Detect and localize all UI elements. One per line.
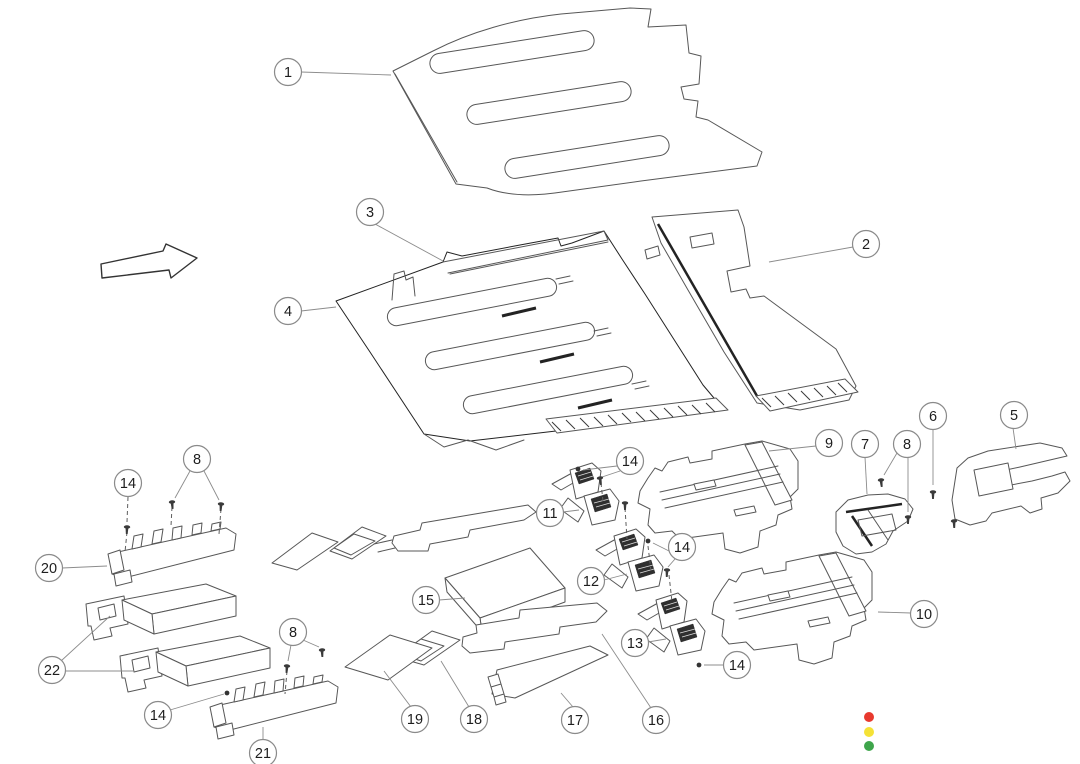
dashed-leader-line <box>171 507 172 526</box>
part-7-frame-bracket <box>836 494 913 554</box>
leader-line <box>62 566 107 568</box>
part-22-block-pads <box>86 584 270 692</box>
callout-3: 3 <box>357 199 384 226</box>
callout-14: 14 <box>669 534 696 561</box>
part-1-top-panel <box>393 8 762 195</box>
leader-line <box>175 471 190 498</box>
part-12-clip-bracket <box>596 529 663 591</box>
part-21-fin-rail <box>210 675 338 739</box>
leader-line <box>561 693 573 707</box>
callout-label: 18 <box>466 712 482 728</box>
screw-icon <box>622 501 628 510</box>
callout-10: 10 <box>911 601 938 628</box>
leader-line <box>1013 428 1016 449</box>
exploded-parts-figure: 1342569788141411142012151081314221419181… <box>0 0 1080 764</box>
callout-label: 14 <box>674 540 690 556</box>
leader-line <box>878 612 911 613</box>
callout-label: 14 <box>120 476 136 492</box>
screw-icon <box>124 525 131 534</box>
screw-head-icon <box>576 467 581 472</box>
callout-14: 14 <box>115 470 142 497</box>
red-dot <box>864 712 874 722</box>
dashed-leader-line <box>125 532 127 552</box>
part-5-cover-bracket <box>952 443 1070 525</box>
callout-14: 14 <box>724 652 751 679</box>
callout-6: 6 <box>920 403 947 430</box>
exploded-parts-diagram: 1342569788141411142012151081314221419181… <box>0 0 1080 764</box>
callout-label: 22 <box>44 663 60 679</box>
status-dots-legend <box>864 712 874 751</box>
screw-head-icon <box>697 663 702 668</box>
leader-line <box>668 559 675 567</box>
callout-label: 14 <box>729 658 745 674</box>
screw-head-icon <box>646 539 651 544</box>
callout-16: 16 <box>643 707 670 734</box>
green-dot <box>864 741 874 751</box>
callout-label: 12 <box>583 574 599 590</box>
callout-5: 5 <box>1001 402 1028 429</box>
callout-label: 9 <box>825 436 833 452</box>
leader-line <box>301 307 336 311</box>
callout-1: 1 <box>275 59 302 86</box>
leader-line <box>375 224 443 261</box>
leader-line <box>769 247 853 262</box>
part-4-mid-panel <box>336 231 728 450</box>
direction-arrow-icon <box>101 244 197 278</box>
leader-line <box>602 471 620 477</box>
callout-label: 20 <box>41 561 57 577</box>
callout-label: 21 <box>255 746 271 762</box>
leader-line <box>288 645 291 661</box>
screw-icon <box>169 500 176 509</box>
callout-14: 14 <box>617 448 644 475</box>
callout-label: 19 <box>407 712 423 728</box>
callout-2: 2 <box>853 231 880 258</box>
callout-11: 11 <box>537 500 564 527</box>
leader-line <box>884 453 897 475</box>
screw-head-icon <box>225 691 230 696</box>
callout-14: 14 <box>145 702 172 729</box>
screw-icon <box>283 664 290 673</box>
callout-label: 3 <box>366 205 374 221</box>
leader-line <box>303 640 319 647</box>
callout-label: 8 <box>193 452 201 468</box>
callout-label: 8 <box>289 625 297 641</box>
callout-label: 8 <box>903 437 911 453</box>
yellow-dot <box>864 727 874 737</box>
callout-label: 1 <box>284 65 292 81</box>
screw-icon <box>951 519 958 528</box>
callout-label: 2 <box>862 237 870 253</box>
callout-9: 9 <box>816 430 843 457</box>
callout-21: 21 <box>250 740 277 764</box>
callout-19: 19 <box>402 706 429 733</box>
callout-label: 15 <box>418 593 434 609</box>
callout-label: 13 <box>627 636 643 652</box>
callout-20: 20 <box>36 555 63 582</box>
callout-8: 8 <box>184 446 211 473</box>
callout-13: 13 <box>622 630 649 657</box>
callout-22: 22 <box>39 657 66 684</box>
leader-line <box>301 72 391 75</box>
dashed-leader-line <box>127 497 128 522</box>
callout-8: 8 <box>280 619 307 646</box>
callout-12: 12 <box>578 568 605 595</box>
callout-label: 17 <box>567 713 583 729</box>
callout-label: 5 <box>1010 408 1018 424</box>
callout-17: 17 <box>562 707 589 734</box>
leader-line <box>384 671 411 707</box>
screw-icon <box>878 478 885 487</box>
callout-label: 7 <box>861 437 869 453</box>
leader-line <box>865 457 867 494</box>
part-17-tabbed-sheet <box>488 646 608 705</box>
callout-label: 4 <box>284 304 292 320</box>
callout-18: 18 <box>461 706 488 733</box>
callout-15: 15 <box>413 587 440 614</box>
callout-4: 4 <box>275 298 302 325</box>
part-10-foam-tray <box>712 552 872 664</box>
callout-label: 11 <box>542 506 557 522</box>
part-9-foam-tray <box>638 441 798 553</box>
callout-8: 8 <box>894 431 921 458</box>
leader-line <box>441 661 469 707</box>
callout-label: 16 <box>648 713 664 729</box>
callout-label: 10 <box>916 607 932 623</box>
screw-icon <box>217 502 224 511</box>
screw-icon <box>319 648 326 657</box>
screw-icon <box>930 490 936 499</box>
callout-label: 14 <box>150 708 166 724</box>
callout-label: 6 <box>929 409 937 425</box>
callout-label: 14 <box>622 454 638 470</box>
callout-7: 7 <box>852 431 879 458</box>
leader-line <box>204 471 219 500</box>
leader-line <box>653 543 669 551</box>
